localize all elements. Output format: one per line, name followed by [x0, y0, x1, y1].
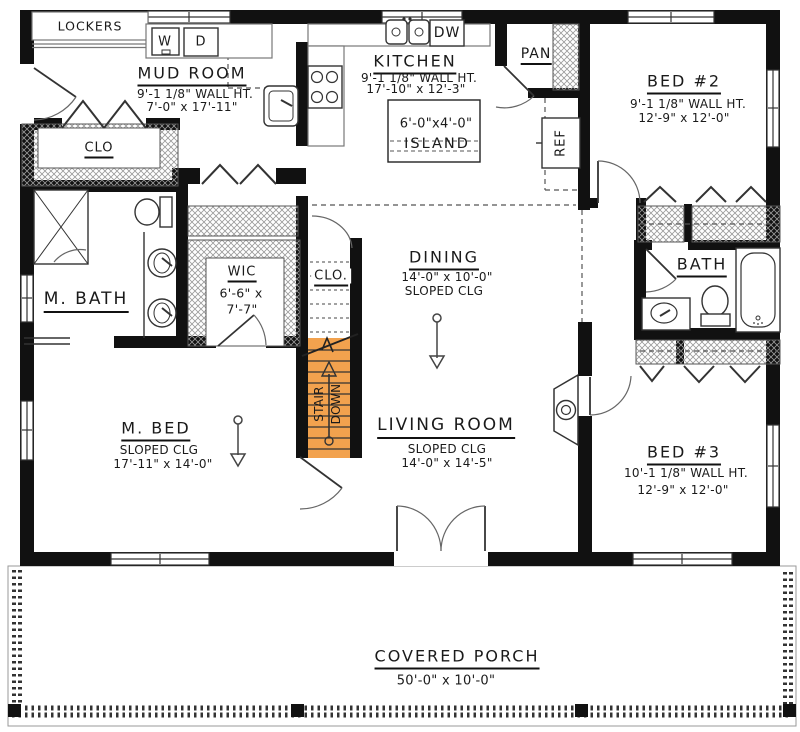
window: [148, 11, 230, 23]
patio-door-opening: [394, 552, 488, 566]
slope-arrow-mbed: [231, 416, 245, 466]
stair-label-2: DOWN: [329, 384, 343, 425]
hall-closet: [188, 206, 298, 236]
shower: [34, 190, 88, 264]
pantry-shelves: [553, 24, 579, 90]
bath-door: [646, 249, 676, 292]
wic-dims2: 7'-7": [226, 302, 257, 317]
mud-room-title: MUD ROOM: [137, 64, 246, 83]
bed2-dims: 12'-9" x 12'-0": [638, 111, 729, 125]
porch-dims: 50'-0" x 10'-0": [397, 674, 496, 689]
bath-title: BATH: [677, 255, 727, 274]
window: [633, 553, 732, 565]
kitchen-title: KITCHEN: [373, 52, 456, 71]
m-bed-title: M. BED: [121, 419, 190, 438]
bathtub: [736, 248, 780, 332]
stair-closet-shelf: [308, 252, 350, 338]
bed3-closet: [636, 340, 780, 364]
dining-ceiling: SLOPED CLG: [405, 284, 484, 298]
living-ceiling: SLOPED CLG: [408, 442, 487, 456]
m-bath-title: M. BATH: [44, 289, 129, 309]
dining-title: DINING: [409, 248, 479, 267]
bath-vanity: [642, 298, 690, 330]
dishwasher-label: DW: [434, 25, 461, 41]
window: [111, 553, 209, 565]
pantry-door: [496, 66, 534, 108]
bed3-dims: 12'-9" x 12'-0": [637, 483, 728, 497]
lockers-label: LOCKERS: [58, 19, 123, 34]
bed2-title: BED #2: [647, 72, 721, 91]
mud-room-dims: 7'-0" x 17'-11": [146, 100, 237, 114]
stair-closet-label: CLO.: [311, 269, 351, 284]
porch-title: COVERED PORCH: [375, 647, 540, 666]
stair-label-1: STAIR: [312, 386, 326, 422]
wic-title: WIC: [228, 265, 257, 280]
floor-plan: LOCKERS W D MUD ROOM 9'-1 1/8" WALL HT. …: [0, 0, 800, 732]
slope-arrow-dining: [430, 314, 444, 368]
mud-closet-label: CLO: [84, 141, 113, 156]
m-bed-dims: 17'-11" x 14'-0": [113, 457, 212, 471]
island-dims: 6'-0"x4'-0": [400, 117, 473, 132]
bed2-door: [598, 161, 640, 203]
dryer-label: D: [195, 35, 206, 50]
range-stove: [308, 66, 342, 108]
double-vanity: [144, 232, 176, 338]
window: [767, 425, 779, 507]
patio-french-doors: [397, 506, 485, 551]
window: [767, 70, 779, 147]
mudroom-sink: [264, 86, 298, 126]
bed3-door: [590, 376, 631, 415]
washer-label: W: [158, 35, 172, 50]
m-bed-ceiling: SLOPED CLG: [120, 443, 199, 457]
bed3-wallht: 10'-1 1/8" WALL HT.: [624, 466, 748, 480]
side-entry-opening: [20, 64, 34, 124]
toilet: [135, 197, 172, 227]
window: [21, 275, 33, 322]
stair-closet-door: [312, 216, 352, 248]
living-dims: 14'-0" x 14'-5": [401, 456, 492, 470]
fireplace: [554, 375, 578, 445]
bed3-title: BED #3: [647, 443, 721, 462]
bed2-wallht: 9'-1 1/8" WALL HT.: [630, 97, 746, 111]
toilet: [701, 286, 730, 326]
dining-dims: 14'-0" x 10'-0": [401, 270, 492, 284]
window: [21, 401, 33, 460]
side-entry-door: [34, 68, 76, 120]
mud-room-wallht: 9'-1 1/8" WALL HT.: [137, 87, 253, 101]
kitchen-dims: 17'-10" x 12'-3": [366, 82, 465, 96]
island-label: ISLAND: [404, 136, 470, 152]
mbed-door: [300, 457, 342, 509]
window: [628, 11, 714, 23]
fridge-label: REF: [554, 129, 569, 157]
wic-dims1: 6'-6" x: [219, 286, 262, 301]
pantry-label: PAN: [521, 46, 552, 62]
living-title: LIVING ROOM: [377, 415, 515, 435]
